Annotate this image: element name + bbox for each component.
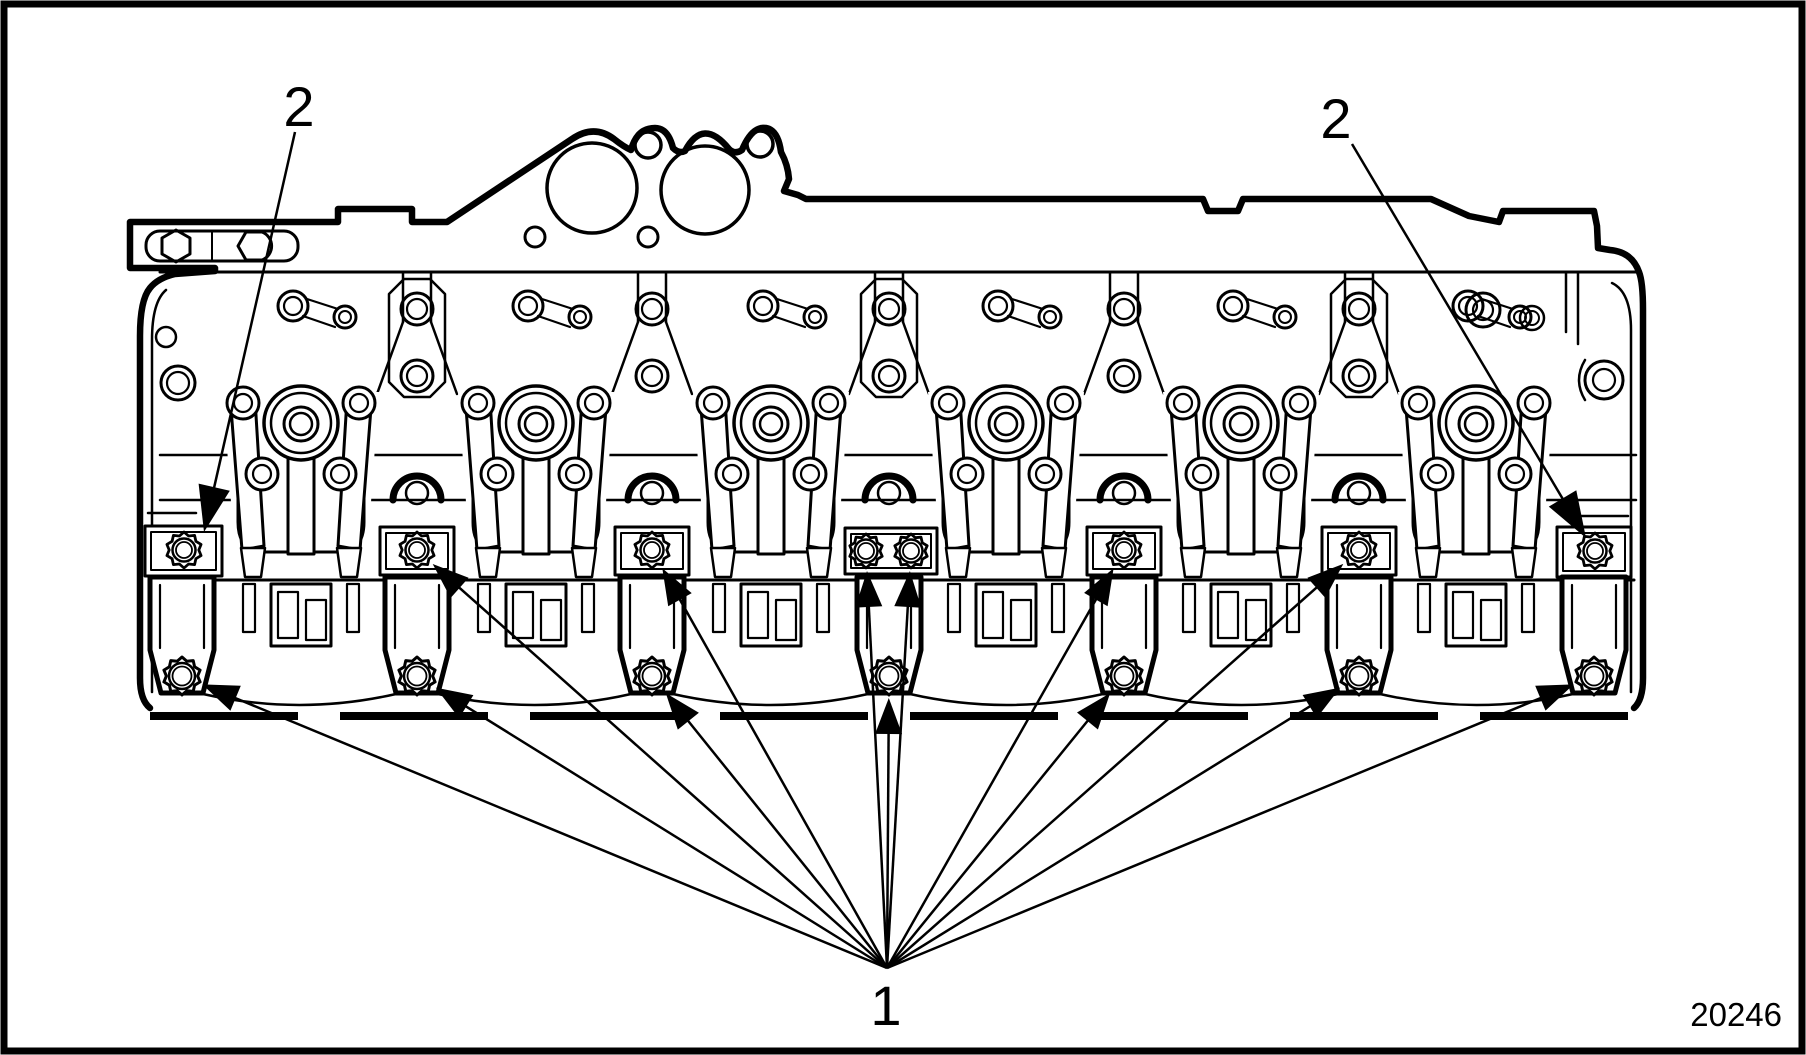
figure-number: 20246 <box>1690 996 1782 1033</box>
callout-2-label-right: 2 <box>1320 87 1351 150</box>
figure-page: 1 2 2 20246 <box>0 0 1806 1055</box>
rocker-assembly <box>1163 386 1319 577</box>
callout-1-label: 1 <box>870 974 901 1037</box>
callout-2-label-left: 2 <box>283 75 314 138</box>
rocker-assembly <box>928 386 1084 577</box>
rocker-assembly <box>1398 386 1554 577</box>
rocker-assembly <box>693 386 849 577</box>
rocker-assembly <box>223 386 379 577</box>
rocker-assembly <box>458 386 614 577</box>
engine-cylinder-head-figure: 1 2 2 20246 <box>0 0 1806 1055</box>
